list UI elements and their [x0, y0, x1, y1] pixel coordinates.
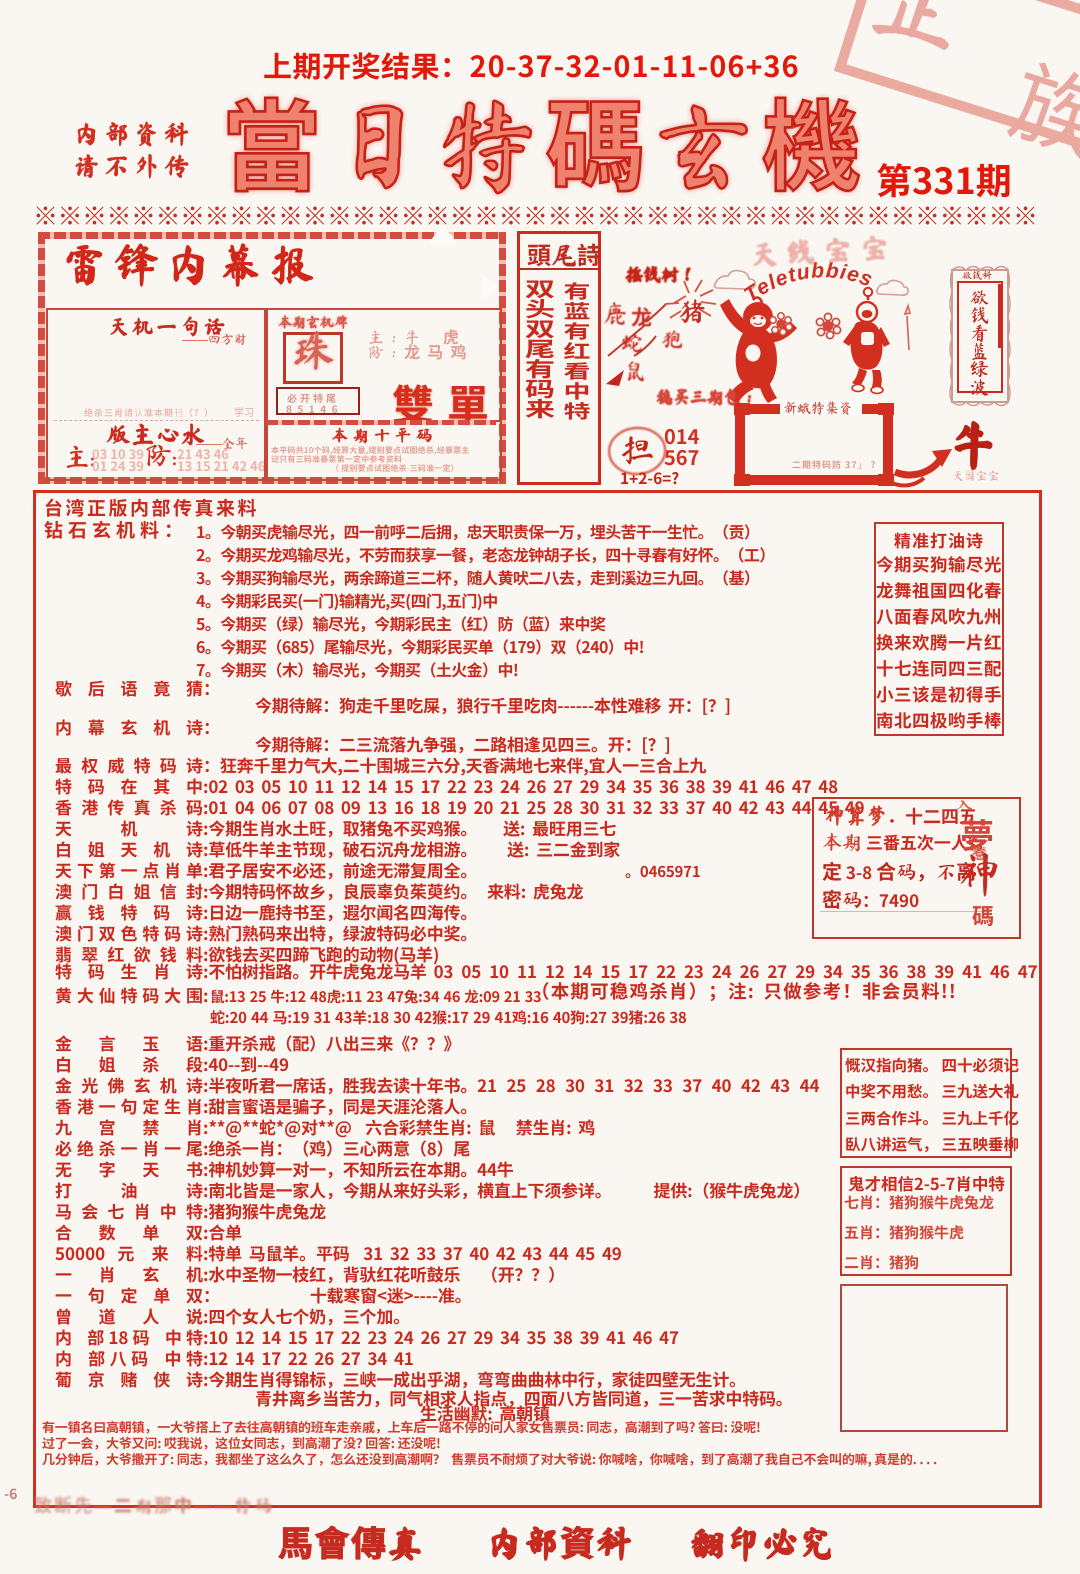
- svg-text:鼠: 鼠: [625, 360, 647, 382]
- svg-text:蓝: 蓝: [970, 342, 989, 361]
- svg-text:钱: 钱: [970, 306, 989, 325]
- svg-text:狍: 狍: [661, 328, 683, 350]
- svg-text:欲钱料: 欲钱料: [961, 270, 992, 281]
- svg-text:欲: 欲: [970, 288, 989, 307]
- svg-text:龙: 龙: [631, 307, 652, 328]
- svg-text:猪: 猪: [678, 297, 706, 325]
- svg-text:看: 看: [970, 324, 989, 343]
- svg-text:1+2-6=?: 1+2-6=?: [620, 467, 679, 489]
- svg-text:二期特码防 37」 ?: 二期特码防 37」 ?: [792, 458, 876, 471]
- svg-text:牛: 牛: [949, 420, 998, 471]
- svg-text:摇钱树！: 摇钱树！: [625, 266, 697, 284]
- svg-text:担: 担: [619, 432, 655, 468]
- svg-text:绿: 绿: [970, 360, 989, 379]
- svg-text:波: 波: [970, 378, 989, 397]
- svg-text:蛇: 蛇: [621, 332, 643, 354]
- svg-text:天园宝宝: 天园宝宝: [952, 469, 1000, 482]
- svg-text:新蛾特集资: 新蛾特集资: [783, 401, 853, 415]
- svg-text:鹿: 鹿: [603, 301, 627, 325]
